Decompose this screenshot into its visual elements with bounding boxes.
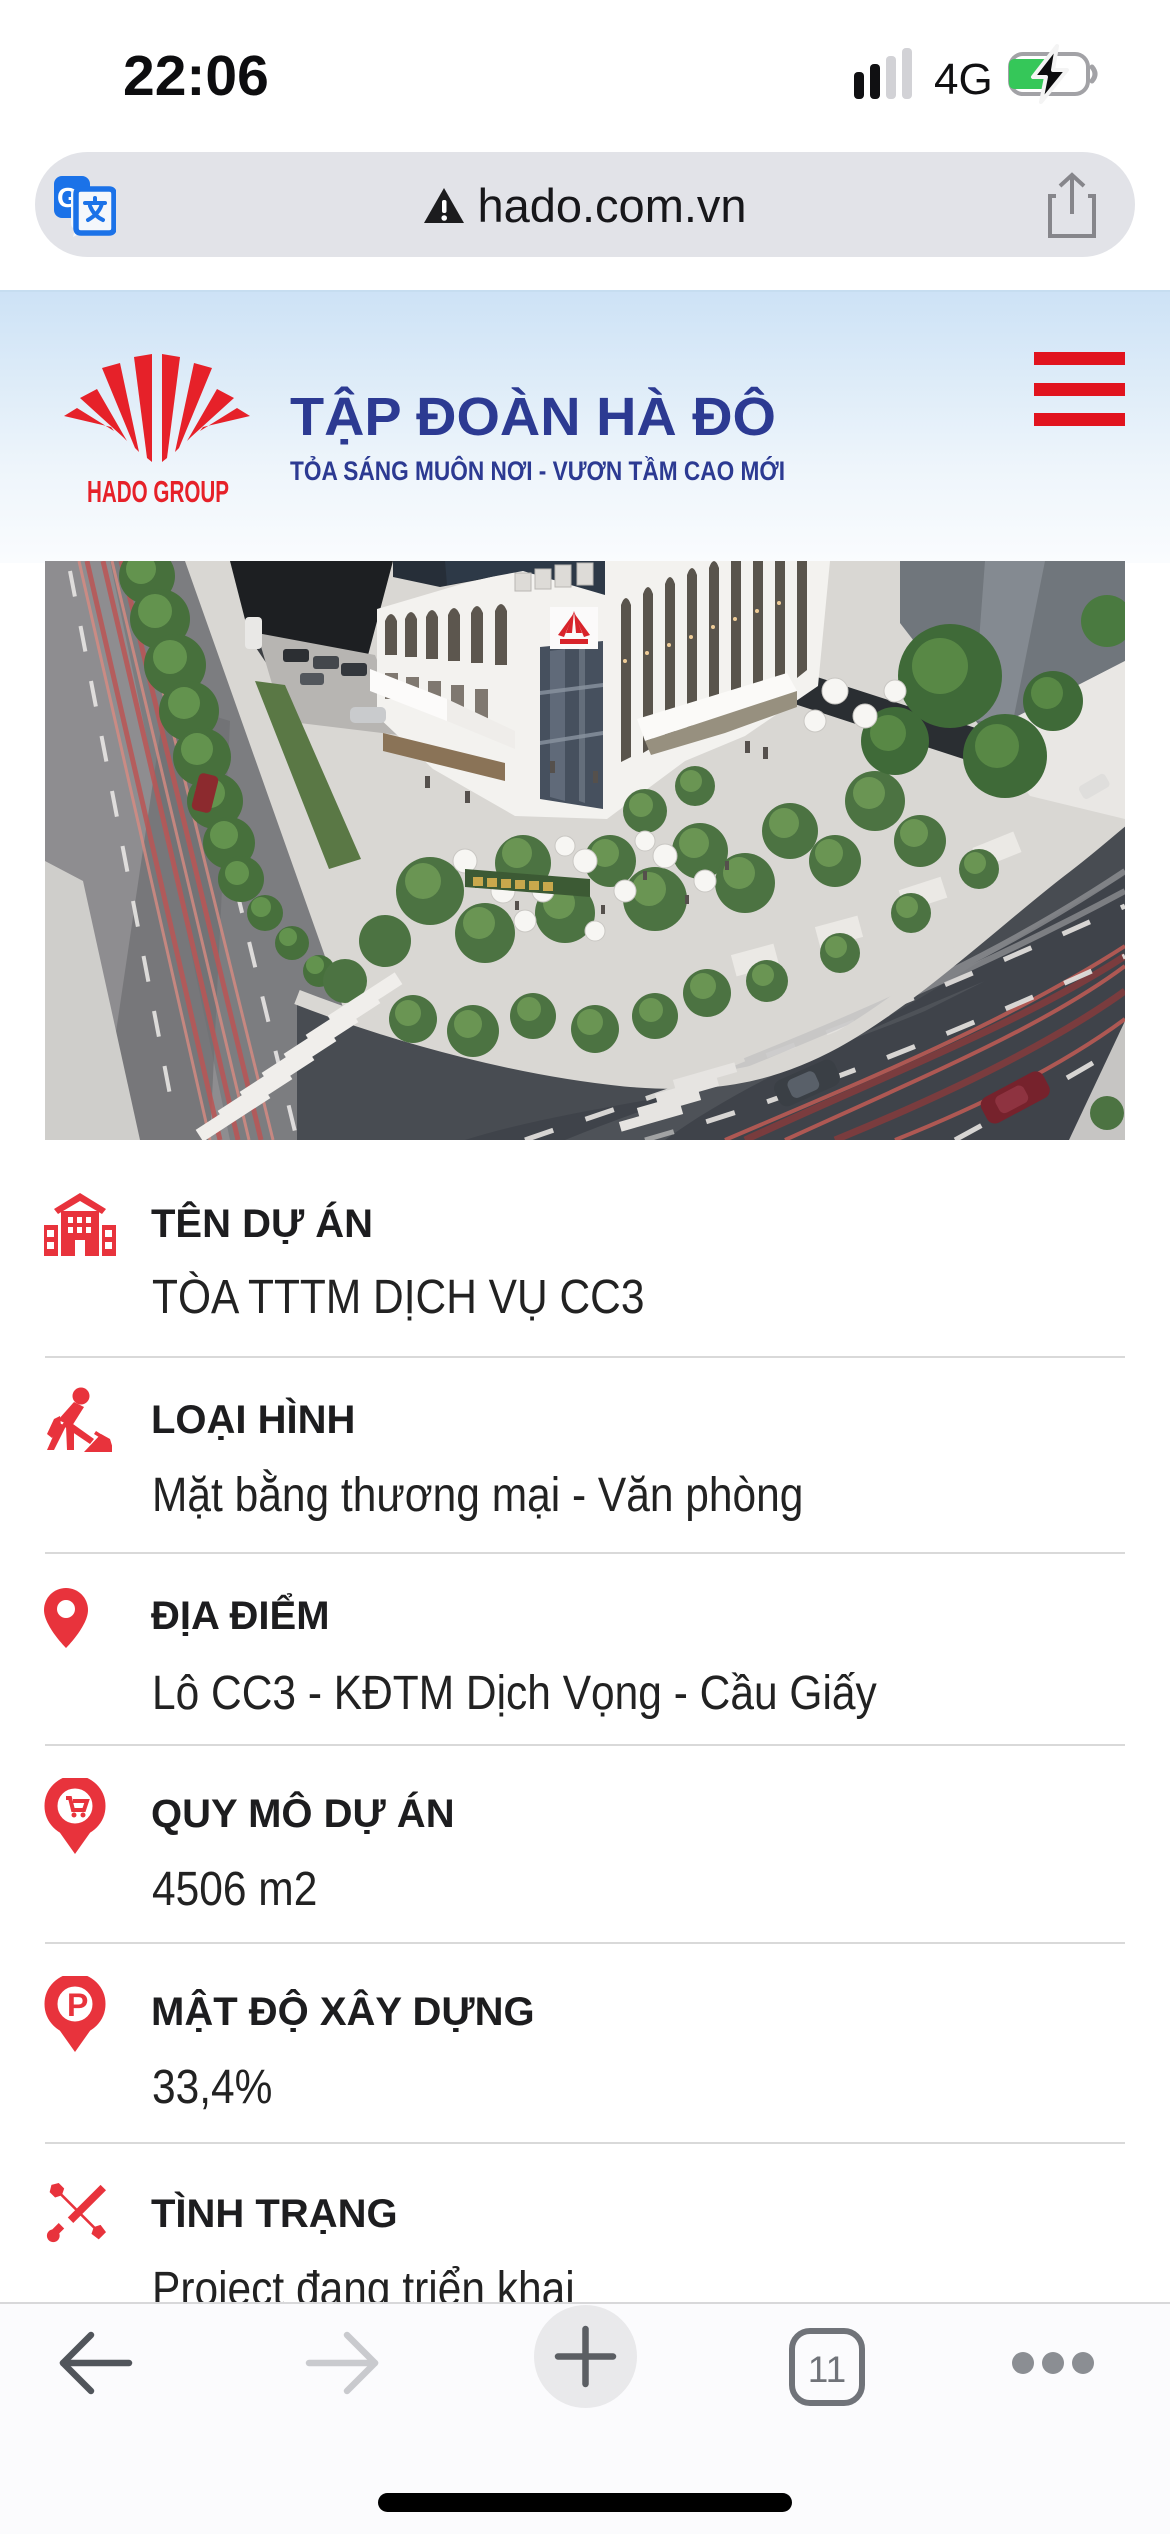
svg-text:11: 11 — [808, 2349, 846, 2390]
svg-text:TỎA SÁNG MUÔN NƠI - VƯƠN TẦM C: TỎA SÁNG MUÔN NƠI - VƯƠN TẦM CAO MỚI — [290, 454, 785, 486]
svg-text:HADO GROUP: HADO GROUP — [87, 474, 229, 504]
svg-text:TẬP ĐOÀN HÀ ĐÔ: TẬP ĐOÀN HÀ ĐÔ — [290, 386, 776, 447]
svg-text:4G: 4G — [934, 55, 993, 104]
svg-text:P: P — [67, 1987, 88, 2023]
